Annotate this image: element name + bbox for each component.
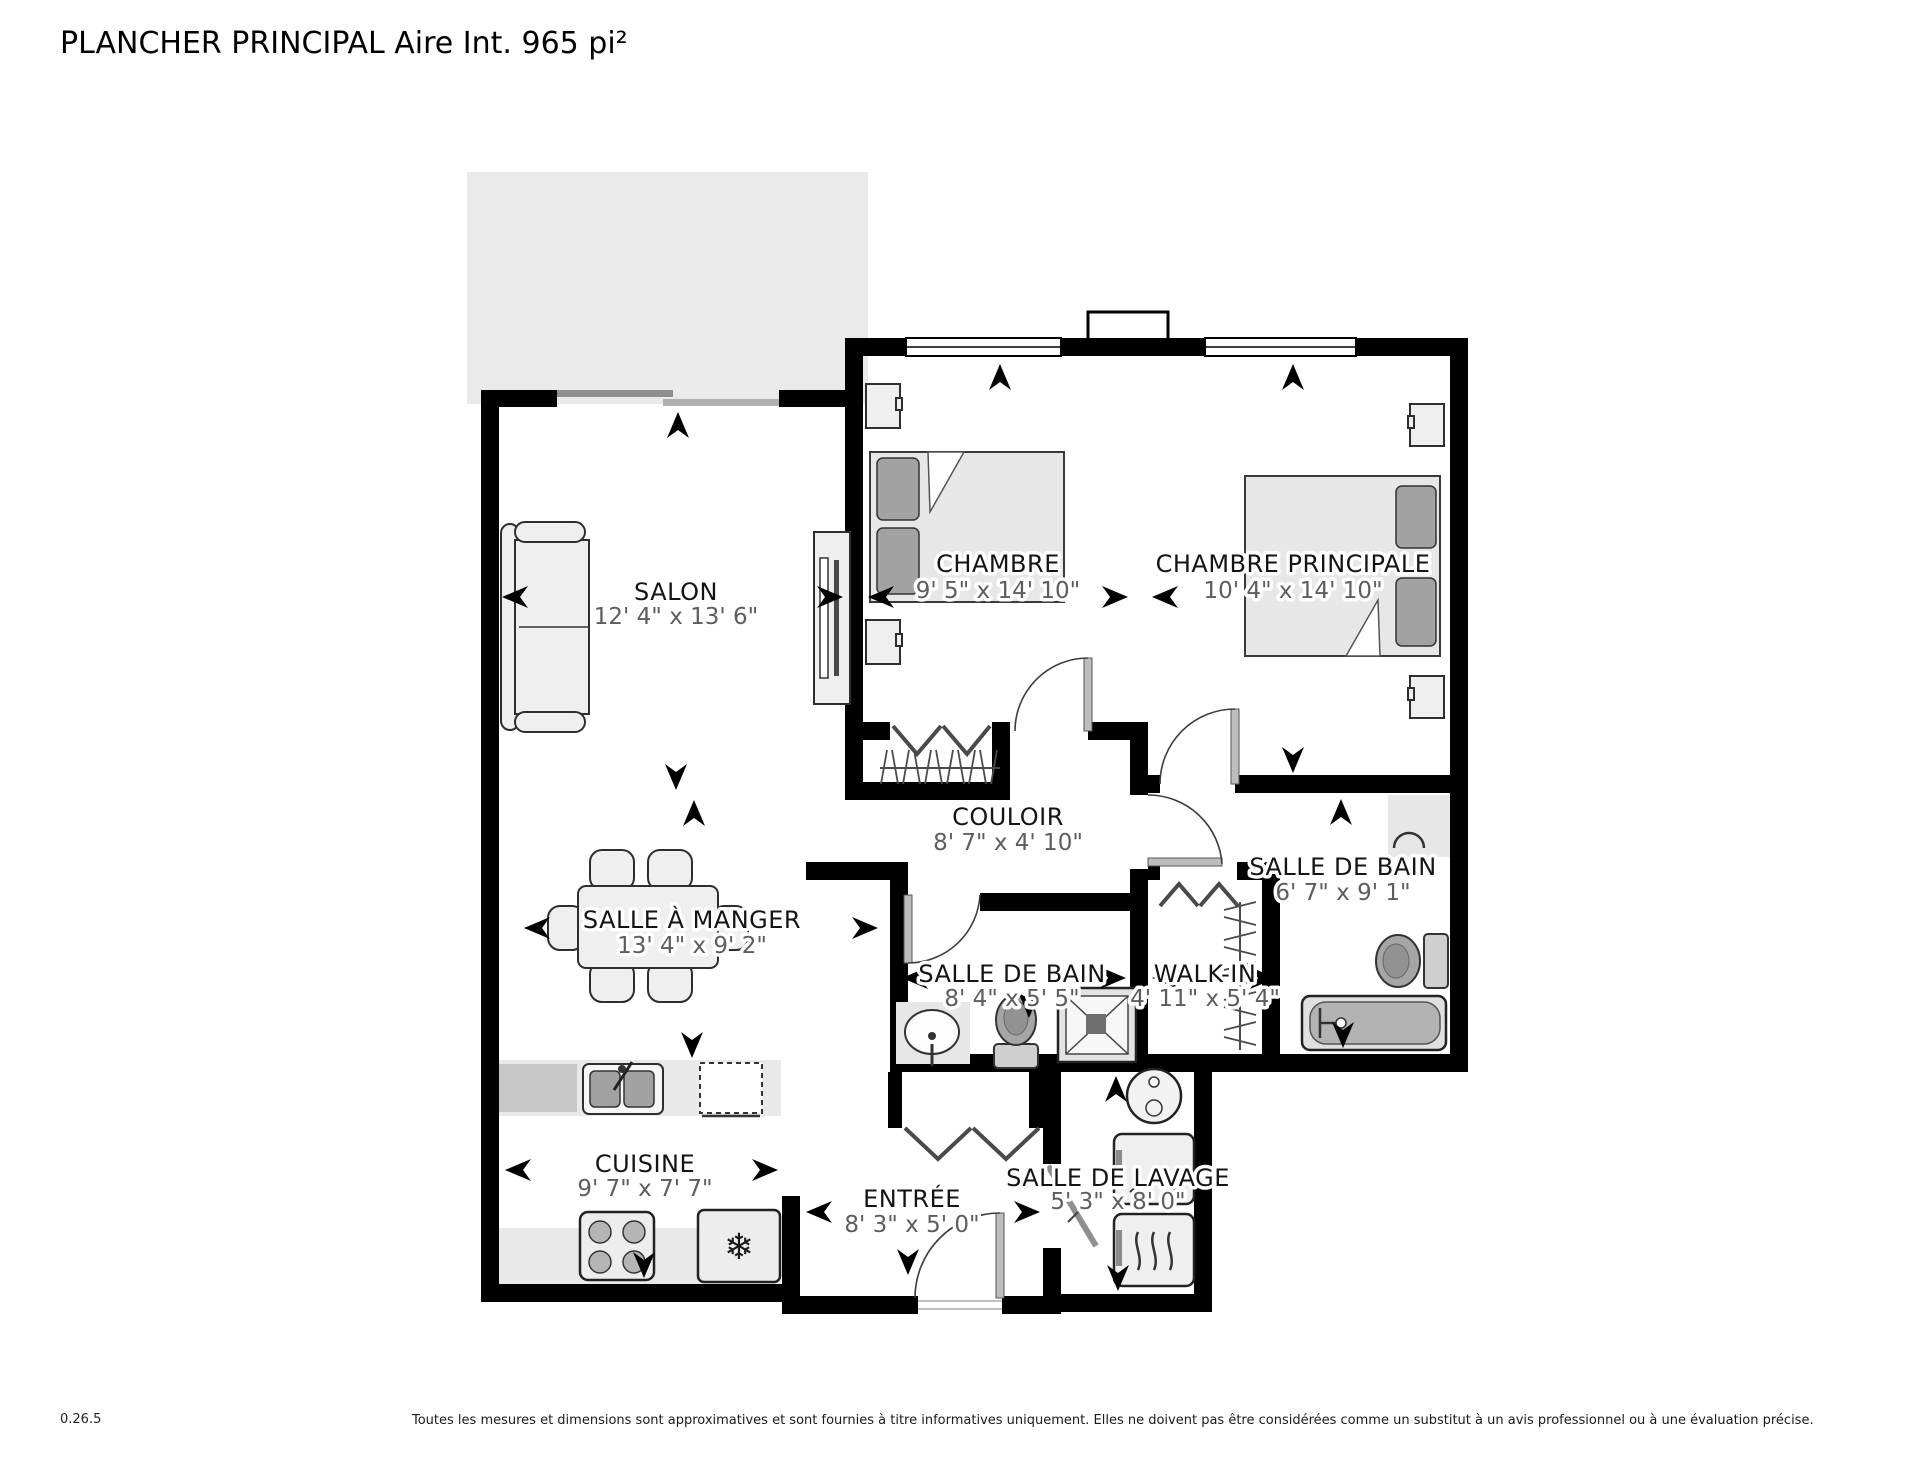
master-door xyxy=(1160,709,1239,784)
room-dims-salle-de-lavage: 5' 3" x 8' 0" xyxy=(1050,1189,1185,1215)
media-unit xyxy=(814,532,850,704)
room-dims-walk-in: 4' 11" x 5' 4" xyxy=(1130,986,1280,1012)
measure-arrow xyxy=(683,800,705,826)
room-dims-cuisine: 9' 7" x 7' 7" xyxy=(577,1176,712,1202)
room-dims-chambre-principale: 10' 4" x 14' 10" xyxy=(1203,578,1382,604)
room-label-salle-de-bain-1: SALLE DE BAIN xyxy=(1249,853,1436,881)
fridge: ❄ xyxy=(698,1210,780,1282)
room-label-salon: SALON xyxy=(634,578,718,606)
bedroom-closet xyxy=(880,726,1000,784)
room-label-couloir: COULOIR xyxy=(952,803,1064,831)
room-dims-salle-de-bain-1: 6' 7" x 9' 1" xyxy=(1275,880,1410,906)
patio-door-panel xyxy=(557,390,673,397)
room-label-salle-de-lavage: SALLE DE LAVAGE xyxy=(1006,1164,1230,1192)
room-dims-chambre: 9' 5" x 14' 10" xyxy=(916,578,1080,604)
floor-plan-page: PLANCHER PRINCIPAL Aire Int. 965 pi² xyxy=(0,0,1920,1483)
measure-arrow xyxy=(1282,364,1304,390)
toilet-tank xyxy=(1424,934,1448,988)
room-dims-salon: 12' 4" x 13' 6" xyxy=(594,604,758,630)
measure-arrow xyxy=(989,364,1011,390)
room-label-salle-a-manger: SALLE À MANGER xyxy=(583,905,801,934)
version-number: 0.26.5 xyxy=(60,1412,101,1427)
measure-arrow xyxy=(806,1201,832,1223)
toilet-tank xyxy=(994,1044,1038,1068)
patio-door-panel xyxy=(663,399,779,406)
balcony-area xyxy=(467,172,868,404)
sofa xyxy=(501,522,589,732)
measure-arrow xyxy=(1014,1201,1040,1223)
room-dims-salle-a-manger: 13' 4" x 9' 2" xyxy=(617,933,767,959)
wall-bumpout xyxy=(1088,312,1168,342)
measure-arrow xyxy=(1102,586,1128,608)
floor-plan-drawing: ❄ xyxy=(0,0,1920,1483)
room-dims-entree: 8' 3" x 5' 0" xyxy=(844,1212,979,1238)
measure-arrow xyxy=(752,1159,778,1181)
measure-arrow xyxy=(1330,799,1352,825)
measure-arrow xyxy=(524,917,550,939)
measure-arrow xyxy=(665,764,687,790)
room-label-chambre-principale: CHAMBRE PRINCIPALE xyxy=(1156,550,1431,578)
room-label-cuisine: CUISINE xyxy=(595,1150,695,1178)
room-label-entree: ENTRÉE xyxy=(863,1184,961,1213)
measure-arrow xyxy=(1282,747,1304,773)
measure-arrow xyxy=(667,412,689,438)
room-label-salle-de-bain-2: SALLE DE BAIN xyxy=(918,960,1105,988)
bedroom-door xyxy=(1015,658,1092,731)
measure-arrow xyxy=(897,1249,919,1275)
measure-arrow xyxy=(505,1159,531,1181)
room-dims-salle-de-bain-2: 8' 4" x 5' 5" xyxy=(944,986,1079,1012)
room-dims-couloir: 8' 7" x 4' 10" xyxy=(933,830,1083,856)
measure-arrow xyxy=(1105,1076,1127,1102)
measure-arrow xyxy=(852,917,878,939)
room-label-chambre: CHAMBRE xyxy=(936,550,1060,578)
disclaimer-text: Toutes les mesures et dimensions sont ap… xyxy=(412,1413,1814,1428)
room-label-walk-in: WALK-IN xyxy=(1154,960,1257,988)
kitchen-sink xyxy=(583,1062,663,1114)
entry-closet xyxy=(905,1128,1039,1159)
snowflake-icon: ❄ xyxy=(724,1227,754,1268)
measure-arrow xyxy=(681,1032,703,1058)
measure-arrow xyxy=(1152,586,1178,608)
dishwasher xyxy=(700,1063,762,1116)
